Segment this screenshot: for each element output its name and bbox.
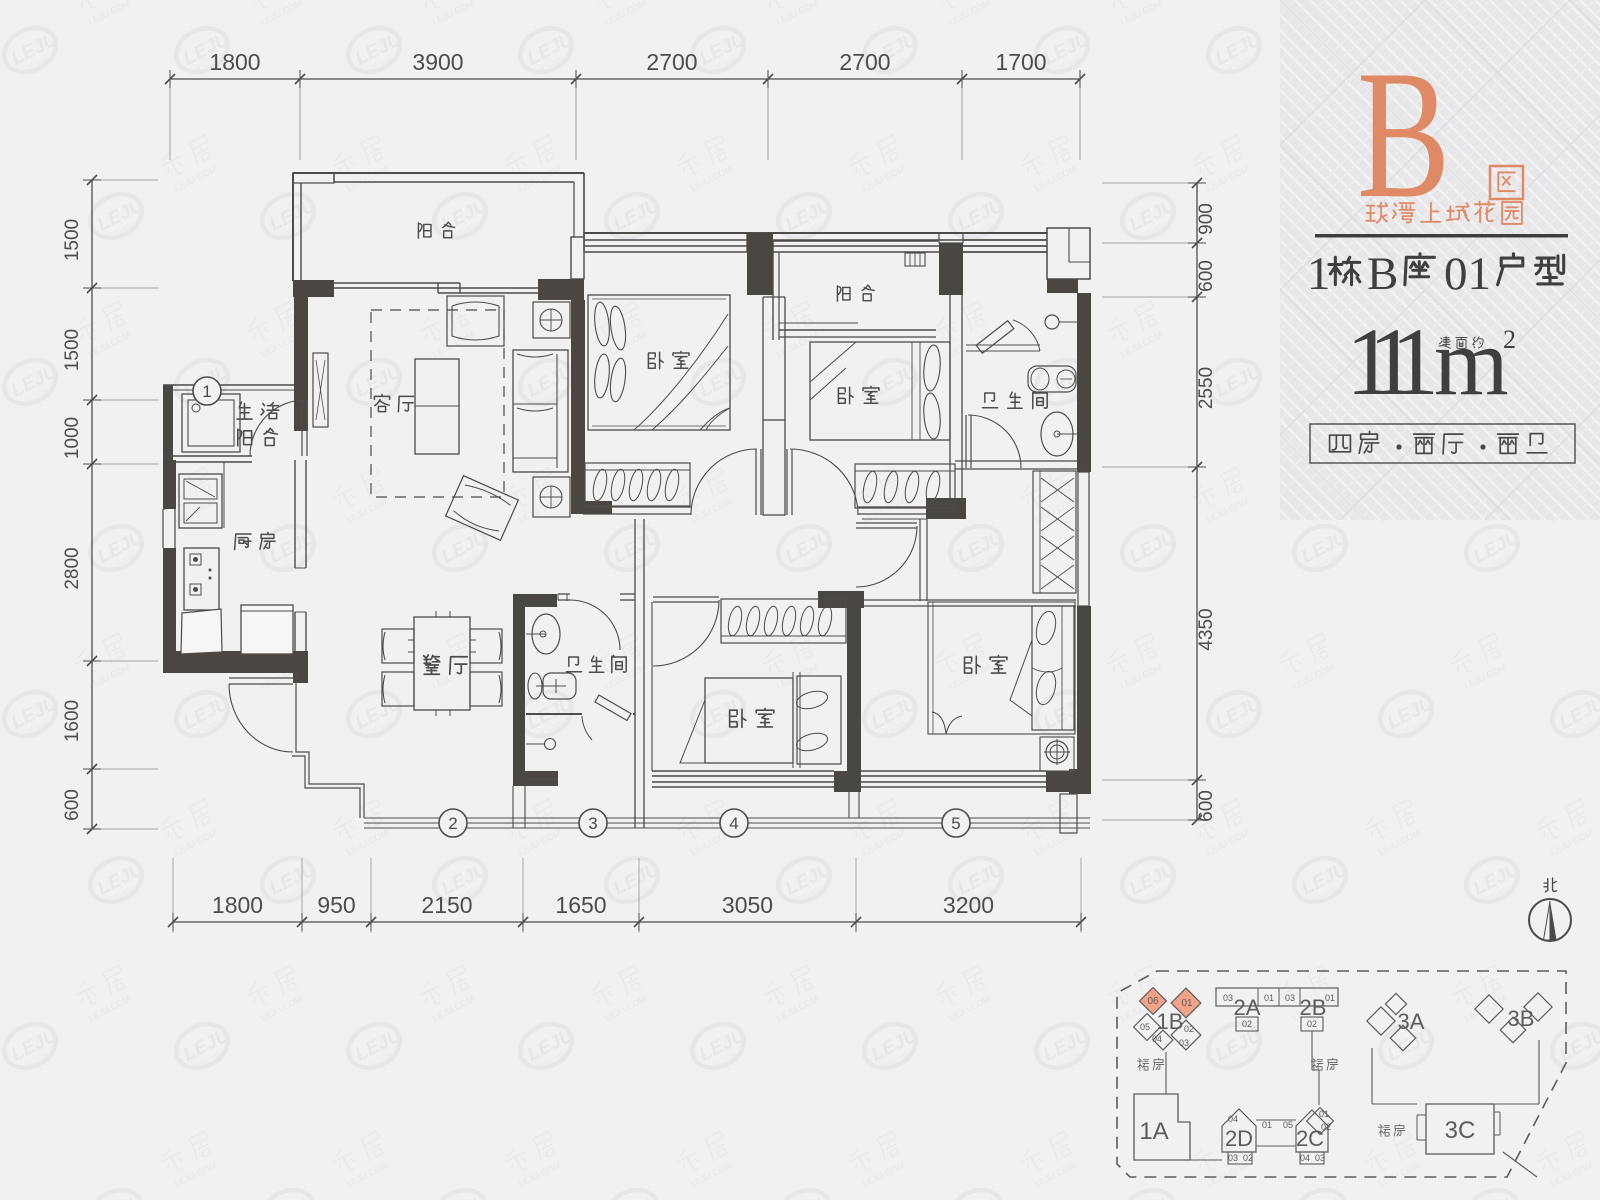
- svg-text:06: 06: [1147, 996, 1159, 1007]
- svg-text:3A: 3A: [1398, 1009, 1425, 1034]
- svg-text:01: 01: [1262, 1120, 1272, 1130]
- svg-text:02: 02: [1307, 1019, 1317, 1029]
- svg-text:3200: 3200: [943, 892, 994, 918]
- svg-text:2C: 2C: [1296, 1126, 1324, 1151]
- svg-text:1700: 1700: [995, 49, 1046, 75]
- svg-text:1B: 1B: [1157, 1009, 1184, 1034]
- svg-text:1: 1: [1307, 248, 1331, 300]
- svg-text:5: 5: [951, 814, 960, 833]
- svg-text:1500: 1500: [62, 219, 83, 261]
- svg-text:03: 03: [1315, 1153, 1325, 1163]
- svg-text:2B: 2B: [1300, 995, 1327, 1020]
- svg-text:4350: 4350: [1196, 608, 1217, 650]
- svg-text:01: 01: [1325, 993, 1335, 1003]
- svg-text:1500: 1500: [62, 329, 83, 371]
- svg-text:03: 03: [1285, 993, 1295, 1003]
- svg-text:05: 05: [1140, 1022, 1150, 1032]
- svg-text:01: 01: [1319, 1109, 1329, 1119]
- svg-text:04: 04: [1152, 1034, 1162, 1044]
- svg-text:03: 03: [1228, 1153, 1238, 1163]
- svg-text:1650: 1650: [555, 892, 606, 918]
- svg-text:2: 2: [448, 814, 457, 833]
- svg-text:03: 03: [1179, 1038, 1189, 1048]
- svg-text:3C: 3C: [1445, 1117, 1476, 1144]
- svg-text:2700: 2700: [646, 49, 697, 75]
- svg-text:3900: 3900: [412, 49, 463, 75]
- svg-text:900: 900: [1196, 203, 1217, 235]
- svg-text:04: 04: [1228, 1114, 1238, 1124]
- svg-text:3: 3: [588, 814, 597, 833]
- svg-text:01: 01: [1444, 248, 1491, 300]
- svg-text:2D: 2D: [1225, 1126, 1253, 1151]
- svg-text:600: 600: [1196, 790, 1217, 822]
- svg-text:02: 02: [1184, 1024, 1194, 1034]
- svg-text:2700: 2700: [839, 49, 890, 75]
- svg-text:1: 1: [202, 382, 211, 401]
- svg-text:02: 02: [1321, 1122, 1331, 1132]
- svg-text:3B: 3B: [1508, 1006, 1535, 1031]
- svg-text:2550: 2550: [1196, 367, 1217, 409]
- svg-text:2A: 2A: [1234, 995, 1261, 1020]
- svg-text:4: 4: [729, 814, 738, 833]
- svg-text:950: 950: [317, 892, 355, 918]
- svg-text:2800: 2800: [62, 547, 83, 589]
- svg-text:1A: 1A: [1139, 1118, 1168, 1145]
- svg-text:600: 600: [62, 789, 83, 821]
- svg-text:03: 03: [1223, 993, 1233, 1003]
- svg-text:1800: 1800: [212, 892, 263, 918]
- svg-text:02: 02: [1242, 1019, 1252, 1029]
- svg-text:01: 01: [1264, 993, 1274, 1003]
- svg-text:1600: 1600: [62, 700, 83, 742]
- svg-text:02: 02: [1243, 1153, 1253, 1163]
- svg-text:05: 05: [1283, 1120, 1293, 1130]
- svg-text:2: 2: [1503, 325, 1516, 354]
- svg-text:2150: 2150: [421, 892, 472, 918]
- svg-text:B: B: [1367, 248, 1398, 300]
- svg-text:04: 04: [1300, 1153, 1310, 1163]
- svg-text:3050: 3050: [722, 892, 773, 918]
- svg-text:600: 600: [1196, 260, 1217, 292]
- svg-text:1000: 1000: [62, 417, 83, 459]
- svg-text:1800: 1800: [209, 49, 260, 75]
- svg-text:m: m: [1434, 308, 1509, 415]
- svg-text:01: 01: [1181, 998, 1193, 1009]
